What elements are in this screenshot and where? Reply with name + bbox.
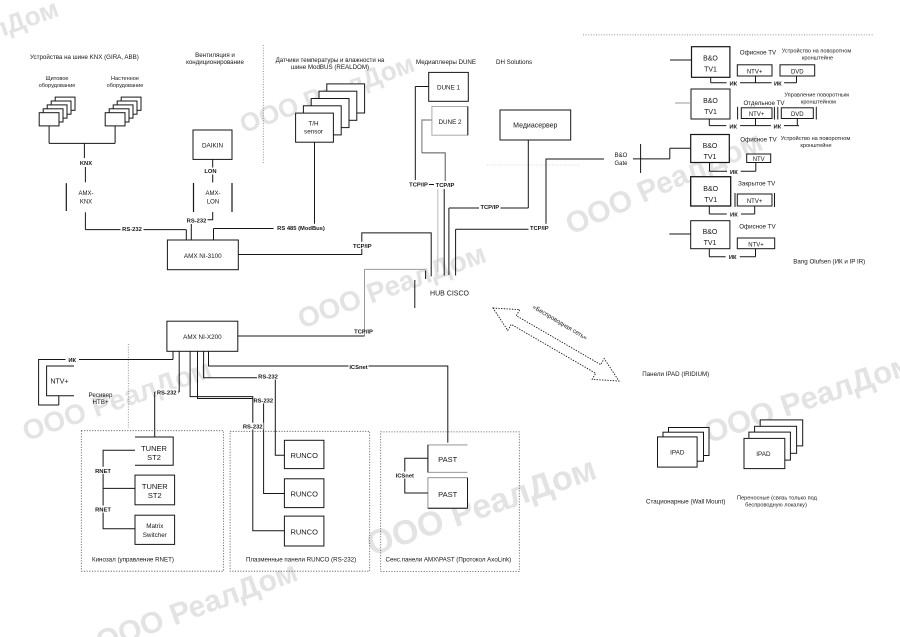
- svg-text:ООО РеалДом: ООО РеалДом: [0, 0, 62, 84]
- svg-text:RS-232: RS-232: [258, 375, 278, 381]
- svg-text:оборудование: оборудование: [39, 83, 76, 89]
- svg-text:Ресивер: Ресивер: [89, 392, 114, 399]
- svg-text:ICSnet: ICSnet: [349, 365, 367, 371]
- svg-text:IPAD: IPAD: [670, 450, 685, 457]
- svg-text:ООО РеалДом: ООО РеалДом: [294, 238, 490, 335]
- svg-text:RNET: RNET: [95, 469, 111, 475]
- svg-text:RUNCO: RUNCO: [290, 490, 318, 499]
- svg-text:Настенное: Настенное: [111, 76, 139, 82]
- svg-text:«Беспроводная сеть»: «Беспроводная сеть»: [531, 304, 588, 342]
- svg-text:ST2: ST2: [147, 453, 161, 462]
- svg-text:DH Solutions: DH Solutions: [496, 59, 532, 66]
- svg-text:ООО РеалДом: ООО РеалДом: [18, 353, 215, 447]
- svg-text:Устройство на поворотном: Устройство на поворотном: [782, 48, 852, 55]
- svg-text:PAST: PAST: [438, 490, 457, 499]
- svg-text:Gate: Gate: [614, 161, 628, 167]
- svg-text:ООО РеалДом: ООО РеалДом: [362, 450, 601, 564]
- svg-text:Вентиляция и: Вентиляция и: [195, 52, 235, 59]
- svg-text:RUNCO: RUNCO: [290, 451, 318, 460]
- svg-text:DVD: DVD: [791, 70, 804, 76]
- svg-text:DUNE 2: DUNE 2: [438, 119, 462, 126]
- svg-text:NTV+: NTV+: [749, 112, 765, 118]
- svg-text:TCP/IP: TCP/IP: [480, 205, 499, 211]
- svg-text:ICSnet: ICSnet: [396, 474, 414, 480]
- svg-text:RS-232: RS-232: [122, 227, 142, 233]
- svg-text:Устройство на поворотном: Устройство на поворотном: [781, 135, 851, 142]
- svg-text:Медиасервер: Медиасервер: [513, 123, 557, 130]
- svg-text:NTV+: NTV+: [748, 243, 764, 249]
- svg-text:RS-232: RS-232: [157, 390, 177, 396]
- svg-text:ИК: ИК: [68, 358, 76, 364]
- svg-text:ИК: ИК: [729, 255, 737, 261]
- svg-text:Кинозал (управление RNET): Кинозал (управление RNET): [92, 557, 174, 564]
- svg-text:TCP/IP: TCP/IP: [409, 183, 428, 189]
- svg-text:KNX: KNX: [80, 161, 92, 167]
- svg-text:ИК: ИК: [729, 124, 737, 130]
- svg-text:Щитовое: Щитовое: [45, 76, 68, 82]
- svg-text:DVD: DVD: [791, 112, 804, 118]
- svg-text:кронштейном: кронштейном: [801, 99, 836, 106]
- svg-text:Офисное TV: Офисное TV: [740, 137, 777, 144]
- svg-text:беспроводную локалку): беспроводную локалку): [745, 503, 807, 509]
- svg-text:TV1: TV1: [704, 109, 717, 116]
- svg-text:B&O: B&O: [703, 186, 718, 193]
- svg-text:sensor: sensor: [304, 129, 323, 136]
- svg-text:PAST: PAST: [438, 455, 457, 464]
- svg-text:IPAD: IPAD: [756, 451, 771, 458]
- svg-text:ИК: ИК: [774, 124, 782, 130]
- svg-text:Matrix: Matrix: [146, 523, 164, 530]
- svg-text:AMX-: AMX-: [79, 191, 94, 197]
- svg-text:Switcher: Switcher: [143, 532, 167, 539]
- svg-text:Медиаплееры DUNE: Медиаплееры DUNE: [416, 59, 476, 66]
- svg-text:TV1: TV1: [704, 240, 717, 247]
- svg-text:B&O: B&O: [703, 229, 718, 236]
- svg-text:оборудование: оборудование: [107, 83, 144, 89]
- svg-text:B&O: B&O: [703, 98, 718, 105]
- svg-text:NTV+: NTV+: [747, 199, 763, 205]
- svg-text:ООО РеалДом: ООО РеалДом: [561, 125, 768, 241]
- svg-text:DUNE 1: DUNE 1: [437, 85, 461, 92]
- svg-text:B&O: B&O: [615, 153, 628, 159]
- svg-text:Плазменные панели RUNCO (RS-23: Плазменные панели RUNCO (RS-232): [246, 557, 356, 564]
- svg-text:B&O: B&O: [703, 143, 718, 150]
- svg-text:Панели IPAD (IRIDIUM): Панели IPAD (IRIDIUM): [642, 371, 709, 378]
- svg-text:кронштейне: кронштейне: [800, 142, 831, 149]
- svg-text:Управление поворотным: Управление поворотным: [784, 93, 849, 99]
- svg-text:ИК: ИК: [729, 81, 737, 87]
- svg-text:TV1: TV1: [704, 67, 717, 74]
- svg-text:Офисное TV: Офисное TV: [739, 224, 776, 231]
- svg-text:ООО РеалДом: ООО РеалДом: [92, 555, 302, 637]
- svg-text:Bang Olufsen (ИК и IP IR): Bang Olufsen (ИК и IP IR): [793, 258, 865, 265]
- svg-text:ИК: ИК: [774, 81, 782, 87]
- svg-text:LON: LON: [207, 200, 219, 206]
- svg-text:RS-232: RS-232: [187, 219, 207, 225]
- svg-text:TUNER: TUNER: [141, 444, 167, 453]
- svg-text:RNET: RNET: [95, 508, 111, 514]
- svg-text:RS 485 (ModBus): RS 485 (ModBus): [277, 226, 325, 232]
- svg-text:NTV+: NTV+: [747, 70, 763, 76]
- svg-text:Стационарные (Wall Mount): Стационарные (Wall Mount): [646, 499, 725, 506]
- svg-text:NTV+: NTV+: [50, 379, 68, 386]
- svg-text:NTV: NTV: [753, 157, 765, 163]
- svg-text:шине ModBUS (REALDOM): шине ModBUS (REALDOM): [291, 64, 369, 71]
- svg-text:ST2: ST2: [148, 491, 162, 500]
- svg-text:RUNCO: RUNCO: [290, 528, 318, 537]
- svg-text:RS-232: RS-232: [253, 399, 273, 405]
- svg-text:ИК: ИК: [730, 170, 738, 176]
- svg-text:кронштейне: кронштейне: [802, 55, 833, 62]
- svg-text:ИК: ИК: [730, 213, 738, 219]
- svg-text:Офисное TV: Офисное TV: [740, 50, 777, 57]
- svg-text:RS-232: RS-232: [243, 425, 263, 431]
- svg-text:TV1: TV1: [704, 197, 717, 204]
- svg-text:LON: LON: [204, 169, 216, 175]
- svg-text:DAIKIN: DAIKIN: [202, 143, 223, 150]
- svg-text:KNX: KNX: [80, 200, 92, 206]
- svg-text:B&O: B&O: [703, 56, 718, 63]
- svg-text:TCP/IP: TCP/IP: [436, 183, 455, 189]
- svg-text:AMX-: AMX-: [206, 191, 221, 197]
- svg-text:AMX NI-X200: AMX NI-X200: [183, 334, 222, 341]
- svg-text:Датчики температуры и влажност: Датчики температуры и влажности на: [276, 57, 385, 64]
- svg-text:TCP/IP: TCP/IP: [354, 330, 373, 336]
- svg-text:Переносные (связь только под: Переносные (связь только под: [737, 496, 818, 502]
- svg-text:кондиционирование: кондиционирование: [186, 59, 244, 66]
- svg-text:T/H: T/H: [308, 121, 319, 128]
- svg-text:Сенс.панели AMX\PAST (Протокол: Сенс.панели AMX\PAST (Протокол AxoLink): [386, 557, 512, 564]
- svg-text:Устройства на шине KNX (GIRA,: Устройства на шине KNX (GIRA, ABB): [30, 54, 139, 61]
- svg-text:Закрытое TV: Закрытое TV: [738, 181, 776, 188]
- svg-text:TCP/IP: TCP/IP: [353, 244, 372, 250]
- svg-text:НТВ+: НТВ+: [93, 399, 109, 406]
- svg-text:TCP/IP: TCP/IP: [530, 226, 549, 232]
- svg-text:Отдельное TV: Отдельное TV: [743, 100, 785, 107]
- svg-text:TV1: TV1: [704, 154, 717, 161]
- svg-text:TUNER: TUNER: [142, 482, 168, 491]
- svg-text:HUB CISCO: HUB CISCO: [430, 291, 469, 298]
- svg-text:AMX NI-3100: AMX NI-3100: [184, 253, 222, 260]
